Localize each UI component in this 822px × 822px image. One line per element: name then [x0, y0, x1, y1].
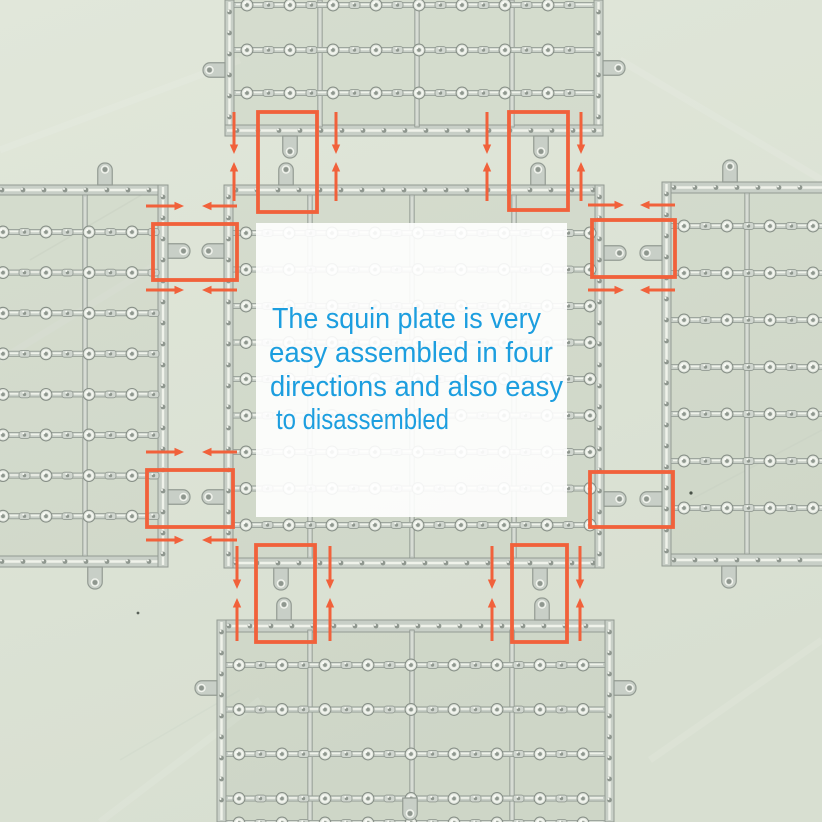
- svg-text:The squin plate is very: The squin plate is very: [272, 303, 541, 335]
- svg-text:directions and also easy: directions and also easy: [270, 371, 563, 403]
- svg-text:easy assembled in four: easy assembled in four: [269, 337, 553, 369]
- svg-text:to disassembled: to disassembled: [276, 404, 449, 436]
